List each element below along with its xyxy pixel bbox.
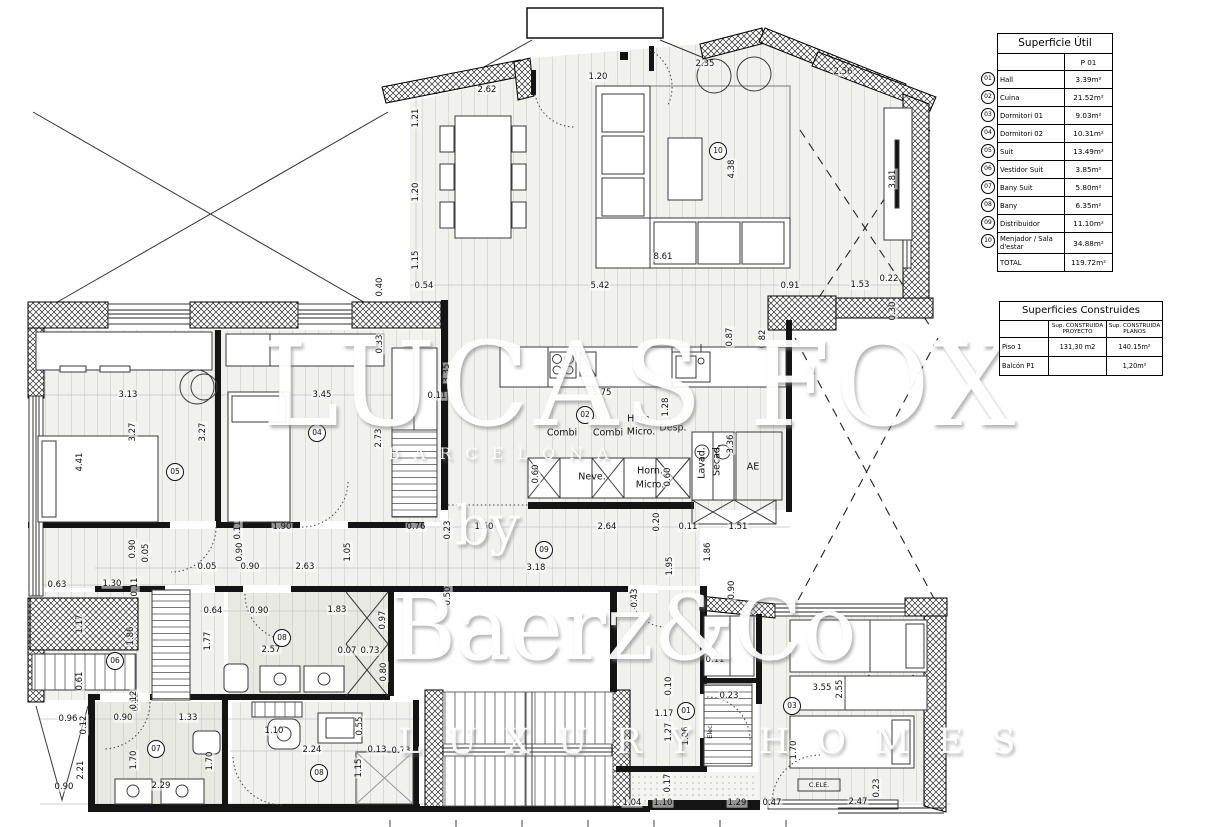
construida-table-header: Sup. CONSTRUIDA PROYECTO Sup. CONSTRUIDA… [1000, 321, 1162, 337]
area-table-row: 09Distribuidor11.10m² [998, 214, 1112, 232]
area-table-row: 05Suit13.49m² [998, 142, 1112, 160]
floorplan-page: 2.621.202.352.561.211.201.150.545.428.61… [0, 0, 1205, 827]
construida-table-row: Balcón P11,20m² [1000, 356, 1162, 375]
col-header-planos: Sup. CONSTRUIDA PLANOS [1107, 321, 1162, 337]
col-header-proyecto: Sup. CONSTRUIDA PROYECTO [1049, 321, 1107, 337]
area-table-row: 07Bany Suit5.80m² [998, 178, 1112, 196]
area-table-row: 04Dormitori 0210.31m² [998, 124, 1112, 142]
area-table-row: 06Vestidor Suit3.85m² [998, 160, 1112, 178]
construida-table-row: Piso 1131,30 m2140.15m² [1000, 337, 1162, 356]
area-table-row: 03Dormitori 019.03m² [998, 106, 1112, 124]
scale-ticks [390, 820, 786, 827]
superficies-construides-title: Superficies Construides [999, 301, 1163, 321]
superficie-util-table: Superficie Útil P 01 01Hall3.39m²02Cuina… [979, 33, 1119, 272]
area-table-row: TOTAL119.72m² [998, 253, 1112, 271]
area-table-row: 08Bany6.35m² [998, 196, 1112, 214]
superficie-util-title: Superficie Útil [997, 33, 1113, 54]
superficies-construides-table: Superficies Construides Sup. CONSTRUIDA … [999, 301, 1169, 376]
area-table-col-header: P 01 [1065, 54, 1112, 70]
area-table-row: 02Cuina21.52m² [998, 88, 1112, 106]
area-table-row: 01Hall3.39m² [998, 70, 1112, 88]
area-table-row: 10Menjador / Sala d'estar34.88m² [998, 232, 1112, 253]
area-table-header: P 01 [998, 54, 1112, 70]
